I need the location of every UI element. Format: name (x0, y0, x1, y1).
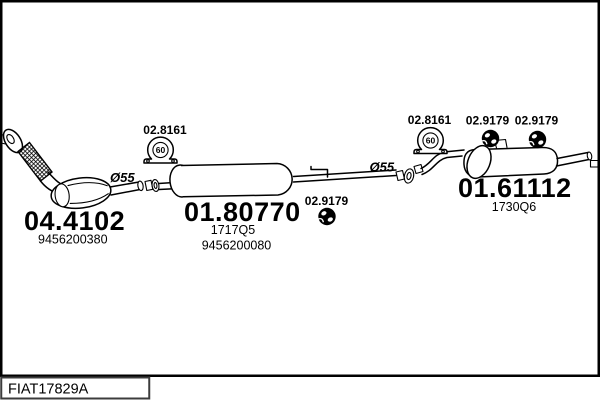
tailpipe-end-bracket (591, 161, 599, 168)
diagram-id-label: FIAT17829A (8, 382, 89, 398)
clamp-size-label: 60 (156, 145, 166, 155)
center-muffler-type-code: 1717Q5 (211, 223, 256, 237)
center-muffler-oe-ref: 9456200080 (202, 239, 272, 253)
rubber-hanger-icon-rear-1 (482, 130, 499, 147)
clamp-size-label: 60 (426, 136, 436, 146)
rear-muffler-type-code: 1730Q6 (492, 200, 537, 214)
rubber-hanger-icon-rear-2 (529, 131, 546, 148)
catalyst-oe-ref: 9456200380 (38, 233, 108, 247)
hanger-center-code: 02.9179 (305, 194, 349, 208)
exhaust-system-diagram: 60 60 02.8161 02.8161 02.9179 02.9179 02… (0, 0, 600, 400)
clamp-center-code: 02.8161 (143, 123, 187, 137)
pipe-diameter-rear: Ø55 (370, 160, 395, 175)
catalyst-part-code: 04.4102 (24, 206, 125, 236)
joint-plate-rear-lower (396, 171, 405, 181)
rear-muffler-part-code: 01.61112 (458, 173, 572, 203)
center-muffler-body (181, 164, 292, 197)
rubber-hanger-icon-center (318, 208, 335, 225)
hanger-rear-1-code: 02.9179 (466, 114, 510, 128)
pipe-diameter-front: Ø55 (110, 170, 135, 185)
hanger-rear-2-code: 02.9179 (515, 114, 559, 128)
clamp-rear-code: 02.8161 (408, 113, 452, 127)
